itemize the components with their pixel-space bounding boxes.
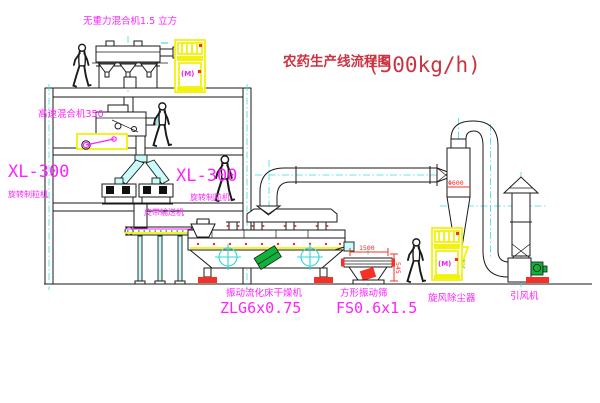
sieve-name-label: 方形振动筛	[340, 287, 388, 299]
belt-conveyor-label: 皮带输送机	[144, 207, 184, 217]
flow-diagram-svg: (M)	[0, 0, 600, 403]
cyclone-diameter-dim: Φ600	[448, 179, 464, 187]
high-speed-mixer	[77, 97, 157, 155]
granulator-left-name-label: 旋转制粒机	[8, 189, 48, 199]
cyclone-label: 旋风除尘器	[428, 292, 476, 304]
dryer-nozzles	[196, 222, 329, 230]
belt-conveyor	[125, 227, 198, 284]
control-cabinet-top: (M)	[175, 40, 205, 92]
fluid-bed-dryer	[188, 209, 345, 283]
fan-label: 引风机	[510, 290, 539, 302]
granulator-left	[102, 178, 136, 204]
gravity-mixer-label: 无重力混合机1.5 立方	[83, 15, 177, 27]
gravity-free-mixer	[92, 36, 176, 92]
dryer-model-label: ZLG6x0.75	[220, 299, 301, 317]
high-speed-mixer-label: 高速混合机350	[38, 108, 104, 120]
sieve-length-dim: 1500	[359, 244, 375, 252]
cad-flow-diagram: (M)	[0, 0, 600, 403]
granulator-right	[139, 178, 173, 204]
person-figure	[154, 103, 172, 146]
motor-symbol: (M)	[438, 260, 451, 268]
exhaust-hood	[247, 209, 337, 222]
motor-symbol: (M)	[181, 70, 194, 78]
diagram-capacity: (500kg/h)	[367, 53, 481, 77]
y-chute	[119, 155, 169, 184]
person-figure	[73, 44, 90, 86]
vibrating-sieve: 1500 545	[335, 242, 402, 288]
sieve-model-label: FS0.6x1.5	[336, 299, 417, 317]
sieve-height-dim: 545	[394, 262, 402, 274]
dryer-name-label: 振动流化床干燥机	[226, 287, 303, 299]
granulator-left-model-label: XL-300	[8, 162, 69, 182]
person-figure	[408, 239, 426, 282]
exhaust-duct	[255, 160, 470, 215]
granulator-right-model-label: XL-300	[176, 166, 237, 186]
control-cabinet-right: (M)	[432, 228, 462, 280]
granulator-right-name-label: 旋转制粒机	[190, 192, 230, 202]
induced-draft-fan	[508, 258, 549, 283]
